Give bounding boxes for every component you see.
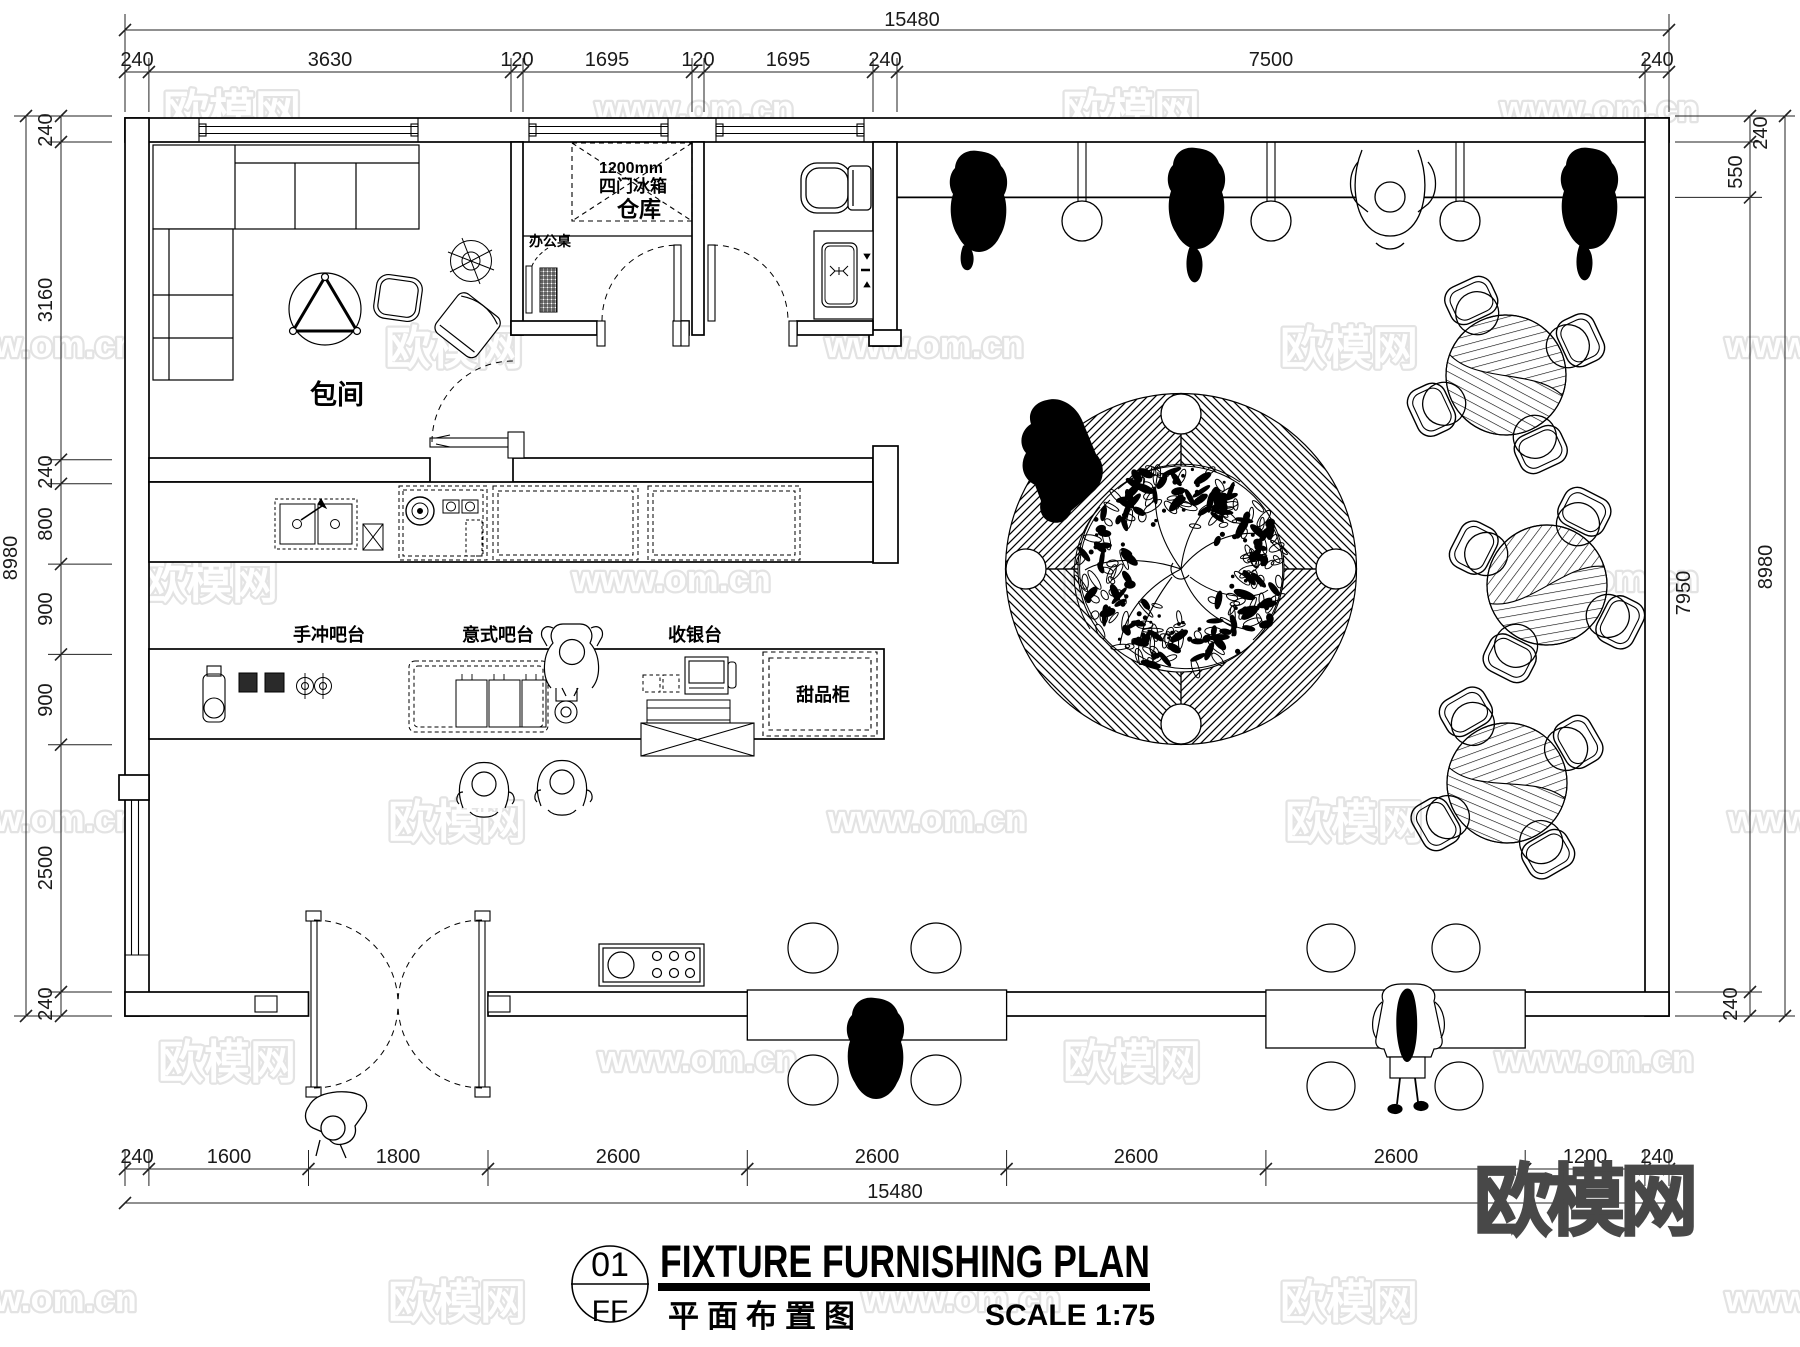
svg-text:www.om.cn: www.om.cn — [0, 1278, 137, 1319]
svg-text:240: 240 — [120, 49, 153, 71]
svg-text:240: 240 — [1640, 49, 1673, 71]
svg-text:欧模网: 欧模网 — [1063, 1036, 1201, 1088]
svg-text:甜品柜: 甜品柜 — [796, 684, 850, 705]
svg-text:2600: 2600 — [596, 1146, 641, 1168]
svg-text:1600: 1600 — [207, 1146, 252, 1168]
svg-text:1800: 1800 — [376, 1146, 421, 1168]
svg-text:240: 240 — [1720, 987, 1742, 1020]
svg-text:1695: 1695 — [766, 49, 811, 71]
svg-text:平面布置图: 平面布置图 — [668, 1299, 863, 1334]
svg-text:www.om.cn: www.om.cn — [0, 324, 137, 365]
svg-text:240: 240 — [35, 113, 57, 146]
svg-text:欧模网: 欧模网 — [1280, 1276, 1418, 1328]
svg-text:仓库: 仓库 — [616, 197, 661, 222]
svg-text:意式吧台: 意式吧台 — [462, 624, 534, 645]
svg-text:800: 800 — [35, 507, 57, 540]
svg-text:2600: 2600 — [1114, 1146, 1159, 1168]
svg-text:1200mm: 1200mm — [599, 160, 663, 177]
svg-text:SCALE 1:75: SCALE 1:75 — [985, 1299, 1155, 1332]
svg-text:包间: 包间 — [310, 379, 364, 410]
svg-text:15480: 15480 — [867, 1181, 923, 1203]
svg-text:欧模网: 欧模网 — [1280, 322, 1418, 374]
svg-text:8980: 8980 — [1755, 545, 1777, 590]
svg-text:7500: 7500 — [1249, 49, 1294, 71]
svg-text:120: 120 — [500, 49, 533, 71]
svg-text:欧模网: 欧模网 — [1285, 796, 1423, 848]
svg-text:www.om.cn: www.om.cn — [1727, 798, 1800, 839]
svg-text:手冲吧台: 手冲吧台 — [293, 624, 365, 645]
svg-text:FIXTURE FURNISHING PLAN: FIXTURE FURNISHING PLAN — [660, 1236, 1150, 1287]
svg-text:2500: 2500 — [35, 846, 57, 891]
svg-text:四门冰箱: 四门冰箱 — [599, 176, 667, 196]
svg-text:900: 900 — [35, 592, 57, 625]
svg-text:550: 550 — [1725, 155, 1747, 188]
svg-text:240: 240 — [1750, 116, 1772, 149]
svg-text:www.om.cn: www.om.cn — [0, 798, 137, 839]
svg-text:7950: 7950 — [1673, 571, 1695, 616]
svg-text:FF: FF — [592, 1295, 629, 1328]
svg-text:3160: 3160 — [35, 278, 57, 323]
svg-text:120: 120 — [681, 49, 714, 71]
svg-text:240: 240 — [35, 987, 57, 1020]
svg-text:2600: 2600 — [1374, 1146, 1419, 1168]
svg-text:240: 240 — [120, 1146, 153, 1168]
svg-text:办公桌: 办公桌 — [529, 233, 572, 249]
svg-text:欧模网: 欧模网 — [388, 1276, 526, 1328]
svg-text:8980: 8980 — [0, 536, 22, 581]
svg-text:2600: 2600 — [855, 1146, 900, 1168]
svg-text:240: 240 — [868, 49, 901, 71]
svg-text:欧模网: 欧模网 — [158, 1036, 296, 1088]
svg-text:900: 900 — [35, 683, 57, 716]
svg-text:www.om.cn: www.om.cn — [827, 798, 1027, 839]
svg-text:欧模网: 欧模网 — [140, 556, 278, 608]
svg-text:3630: 3630 — [308, 49, 353, 71]
svg-text:收银台: 收银台 — [668, 624, 722, 645]
svg-text:240: 240 — [35, 455, 57, 488]
svg-text:www.om.cn: www.om.cn — [571, 558, 771, 599]
svg-text:15480: 15480 — [884, 9, 940, 31]
svg-text:www.om.cn: www.om.cn — [1724, 1278, 1800, 1319]
svg-text:01: 01 — [591, 1246, 629, 1284]
svg-text:www.om.cn: www.om.cn — [1724, 324, 1800, 365]
svg-text:www.om.cn: www.om.cn — [597, 1038, 797, 1079]
svg-text:欧模网: 欧模网 — [1474, 1157, 1693, 1245]
svg-text:1695: 1695 — [585, 49, 630, 71]
